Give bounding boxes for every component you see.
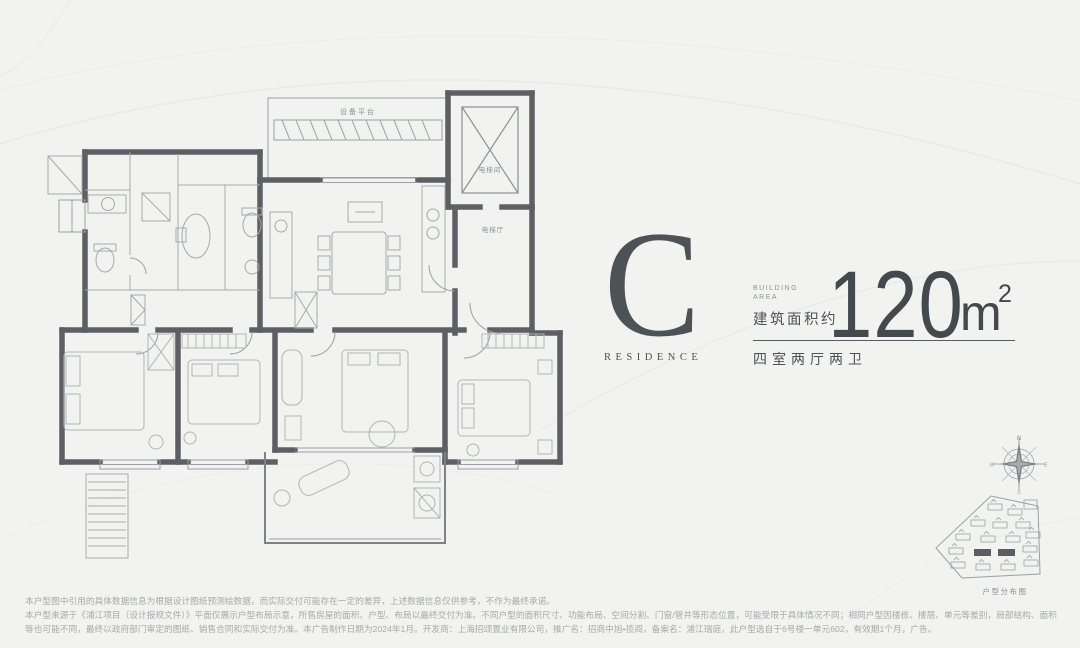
walls <box>62 93 560 462</box>
disclaimer-line-3: 等也可能不同，最终以政府部门审定的图纸、销售合同和实际交付为准。本广告制作日期为… <box>25 622 1065 635</box>
area-unit: m <box>960 288 1002 338</box>
compass-w-label: W <box>989 463 995 469</box>
windows <box>59 178 518 470</box>
bedrooms <box>64 334 552 456</box>
site-plan-map <box>928 486 1076 586</box>
kitchen-dining <box>270 186 445 328</box>
door-arcs <box>130 258 490 358</box>
disclaimer-line-2: 本户型来源于《浦江项目（设计报规文件）》平面仅展示户型布局示意，所售房屋的面积、… <box>25 608 1065 621</box>
elevator-shaft <box>462 107 518 193</box>
unit-type-letter: C <box>604 208 700 360</box>
unit-layout-description: 四室两厅两卫 <box>753 349 867 369</box>
site-plan-buildings <box>949 500 1040 571</box>
balcony-furniture <box>274 456 440 518</box>
area-divider-line <box>753 340 1015 341</box>
elevator-room-label: 电梯间 <box>479 165 502 174</box>
compass-n-label: N <box>1017 436 1022 442</box>
unit-type-caption: RESIDENCE <box>604 352 716 363</box>
area-value: 120 <box>828 258 964 353</box>
elevator-hall-label: 电梯厅 <box>482 225 505 234</box>
poster-canvas: 设备平台 <box>0 0 1080 648</box>
compass-e-label: E <box>1044 463 1048 469</box>
balcony <box>265 452 445 543</box>
disclaimer-line-1: 本户型图中引用的具体数据信息为根据设计图纸预测绘数据，而实际交付可能存在一定的差… <box>25 594 1065 607</box>
area-prefix-label: 建筑面积约 <box>753 308 838 329</box>
site-plan-highlighted-buildings <box>974 549 1015 556</box>
building-area-en-label: BUILDING AREA <box>753 284 798 302</box>
floor-plan: 设备平台 <box>30 60 565 565</box>
bathrooms <box>85 152 262 325</box>
equipment-platform-label: 设备平台 <box>340 107 376 116</box>
area-unit-exponent: 2 <box>998 282 1012 307</box>
